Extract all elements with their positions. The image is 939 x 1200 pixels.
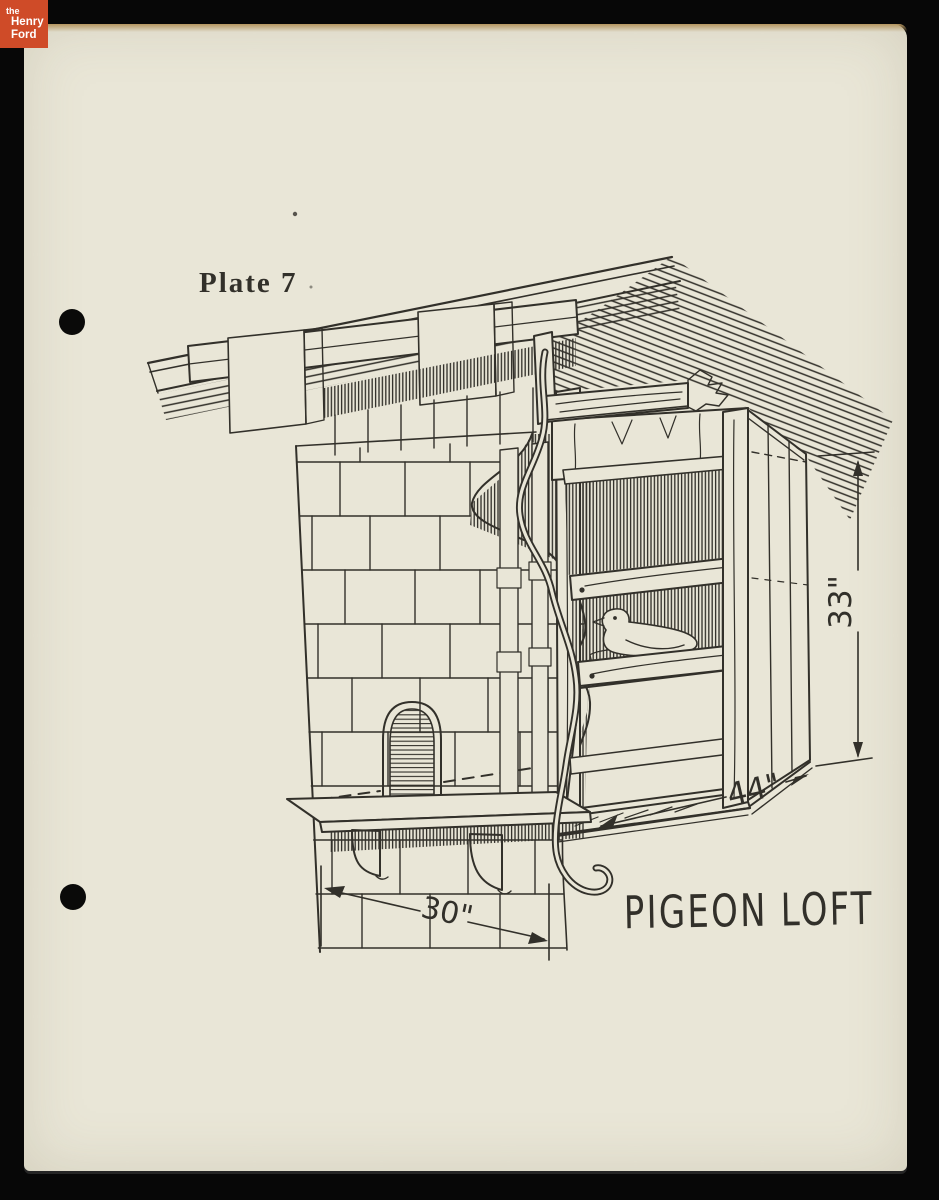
- henry-ford-logo: the Henry Ford: [0, 0, 48, 48]
- logo-line-the: the: [6, 7, 20, 16]
- logo-line-henry: Henry: [11, 17, 44, 29]
- punch-hole-bottom: [60, 884, 86, 910]
- logo-line-ford: Ford: [11, 30, 37, 42]
- page-top-edge: [24, 24, 907, 32]
- document-page: [24, 24, 907, 1171]
- punch-hole-top: [59, 309, 85, 335]
